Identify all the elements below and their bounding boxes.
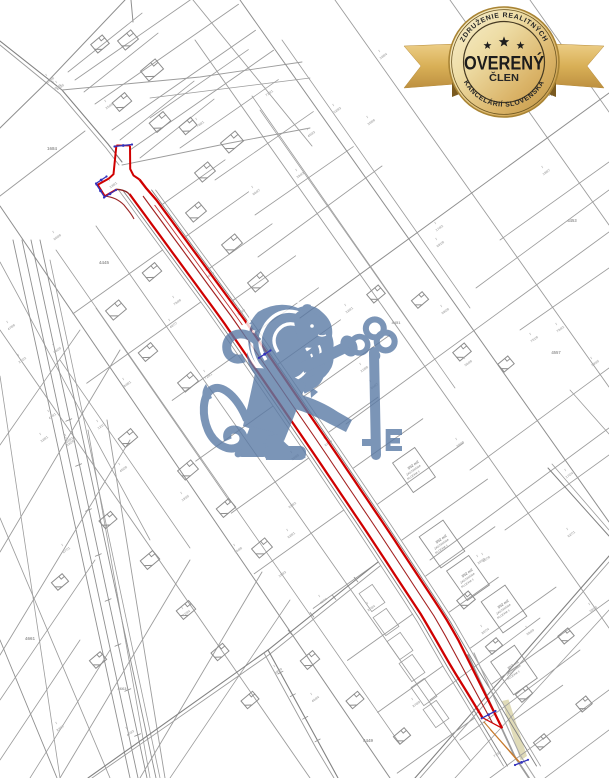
svg-text:4445: 4445 <box>99 260 110 265</box>
svg-text:4661: 4661 <box>25 636 36 641</box>
svg-text:4449: 4449 <box>363 738 374 743</box>
svg-text:OVERENÝ: OVERENÝ <box>464 53 544 75</box>
svg-text:4453: 4453 <box>567 218 577 223</box>
svg-text:ČLEN: ČLEN <box>489 71 519 84</box>
svg-text:4451: 4451 <box>392 320 402 325</box>
svg-text:1684: 1684 <box>47 146 58 151</box>
svg-text:4663: 4663 <box>118 686 128 691</box>
svg-text:4557: 4557 <box>551 350 561 355</box>
